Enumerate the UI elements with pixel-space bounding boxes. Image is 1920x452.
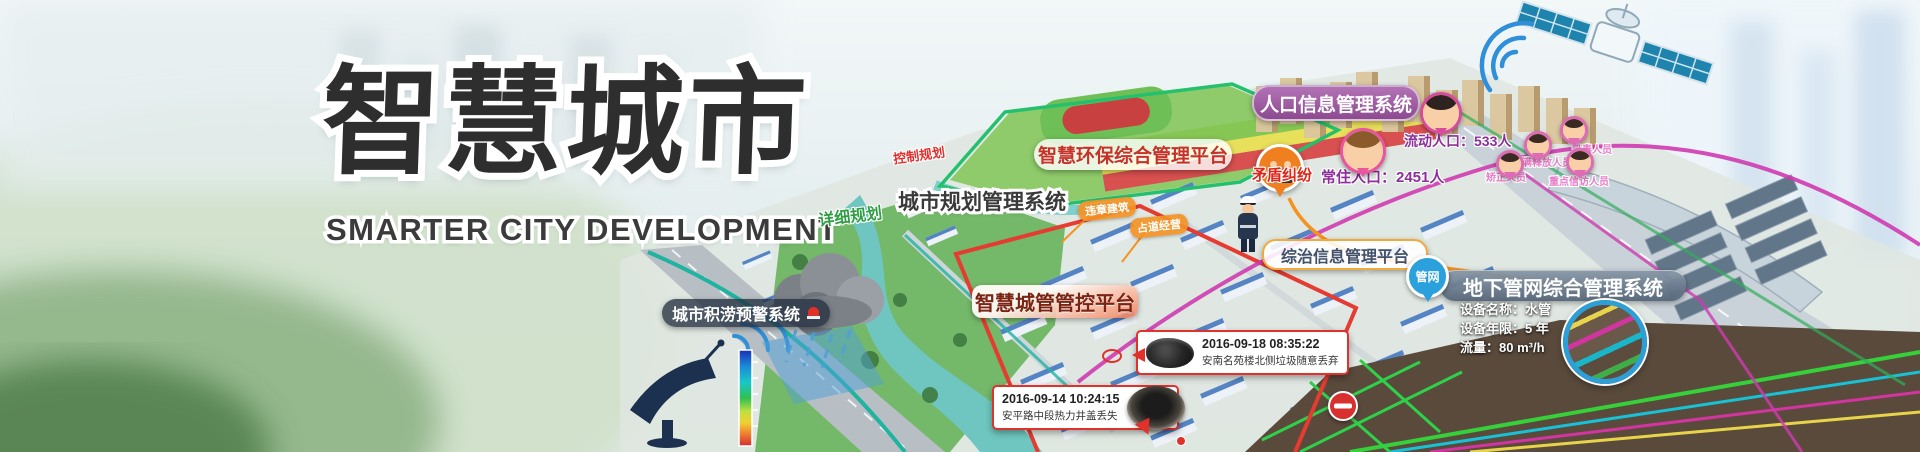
subtitle-text: SMARTER CITY DEVELOPMENT xyxy=(326,212,839,248)
incident-time: 2016-09-18 08:35:22 xyxy=(1202,337,1339,351)
label-flood-warning-system: 城市积涝预警系统 xyxy=(662,299,830,327)
flood-warning-text: 城市积涝预警系统 xyxy=(672,301,800,325)
floating-population-pin xyxy=(1420,92,1462,134)
label-population-system: 人口信息管理系统 xyxy=(1252,85,1420,121)
smart-city-banner: 智慧城市 智慧城市 SMARTER CITY DEVELOPMENT SMART… xyxy=(0,0,1920,452)
person-tag-pin xyxy=(1524,131,1552,159)
title-text: 智慧城市 xyxy=(320,56,813,192)
label-governance-platform: 综治信息管理平台 xyxy=(1262,239,1428,270)
label-floating-population: 流动人口：533人 xyxy=(1404,131,1511,151)
incident-desc: 安平路中段热力井盖丢失 xyxy=(1002,408,1119,423)
label-city-mgmt-platform: 智慧城管管控平台 xyxy=(972,285,1138,318)
label-urban-planning-system: 城市规划管理系统 城市规划管理系统 xyxy=(898,186,1066,216)
person-face-icon xyxy=(1423,95,1459,131)
siren-icon xyxy=(807,307,820,319)
pipe-age: 设备年限：5 年 xyxy=(1460,319,1551,338)
incident-callout-manhole: 2016-09-14 10:24:15 安平路中段热力井盖丢失 xyxy=(992,385,1179,430)
person-tag-pin xyxy=(1566,148,1594,176)
pipe-flow: 流量：80 m³/h xyxy=(1460,338,1551,357)
manhole-photo xyxy=(1127,386,1185,430)
incident-marker xyxy=(1176,436,1186,446)
label-env-protection-platform: 智慧环保综合管理平台 xyxy=(1034,139,1232,170)
resident-population-pin xyxy=(1340,128,1386,174)
label-pipeline-system: 地下管网综合管理系统 xyxy=(1440,270,1686,301)
person-tag-pin xyxy=(1560,116,1588,144)
pipeline-info: 设备名称：水管 设备年限：5 年 流量：80 m³/h xyxy=(1460,300,1551,357)
garbage-photo xyxy=(1146,338,1194,368)
incident-time: 2016-09-14 10:24:15 xyxy=(1002,392,1119,406)
police-officer-figure xyxy=(1236,196,1260,252)
no-entry-sign-icon xyxy=(1328,391,1358,421)
person-face-icon xyxy=(1343,131,1383,171)
incident-marker xyxy=(1102,349,1122,363)
page-subtitle: SMARTER CITY DEVELOPMENT SMARTER CITY DE… xyxy=(326,212,839,248)
label-resident-population: 常住人口：2451人 xyxy=(1321,166,1444,187)
incident-callout-garbage: 2016-09-18 08:35:22 安南名苑楼北侧垃圾随意丢弃 xyxy=(1136,330,1349,375)
city-map-illustration xyxy=(0,0,1920,452)
pipe-name: 设备名称：水管 xyxy=(1460,300,1551,319)
person-tag-pin xyxy=(1496,150,1524,178)
pipeline-pin: 管网 xyxy=(1406,255,1449,298)
pipeline-magnifier xyxy=(1563,300,1647,384)
incident-desc: 安南名苑楼北侧垃圾随意丢弃 xyxy=(1202,353,1339,368)
page-title: 智慧城市 智慧城市 xyxy=(320,56,813,192)
label-dispute: 矛盾纠纷 xyxy=(1252,164,1312,185)
